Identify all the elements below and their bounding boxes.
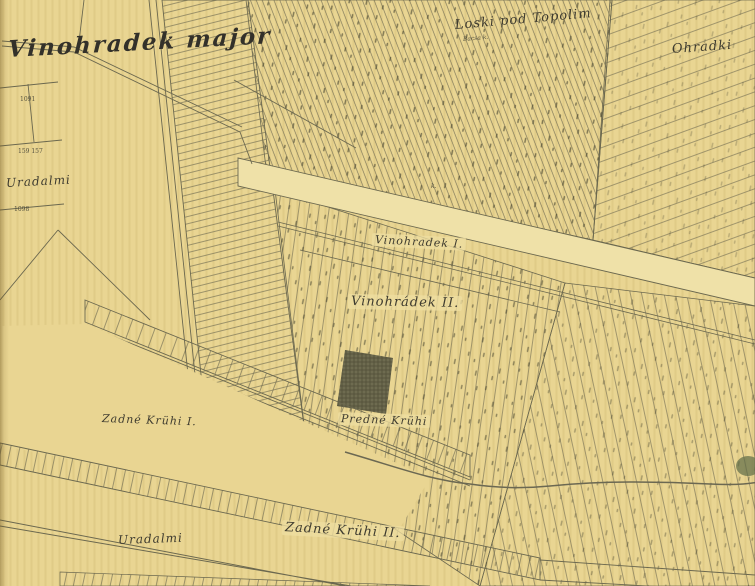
map-canvas[interactable]: Vinohradek major Loski pod Topolim Bacsa… [0, 0, 755, 586]
parcel-number: 1091 [20, 96, 35, 103]
map-engraving [0, 0, 755, 586]
label-uradalmi-bottom: Uradalmi [118, 531, 183, 547]
parcel-number: 159 157 [18, 148, 43, 155]
label-vinohradek-ii: Vinohrádek II. [348, 294, 463, 311]
parcel-number: 1098 [14, 206, 29, 213]
field-marker-k: k. [431, 183, 437, 190]
